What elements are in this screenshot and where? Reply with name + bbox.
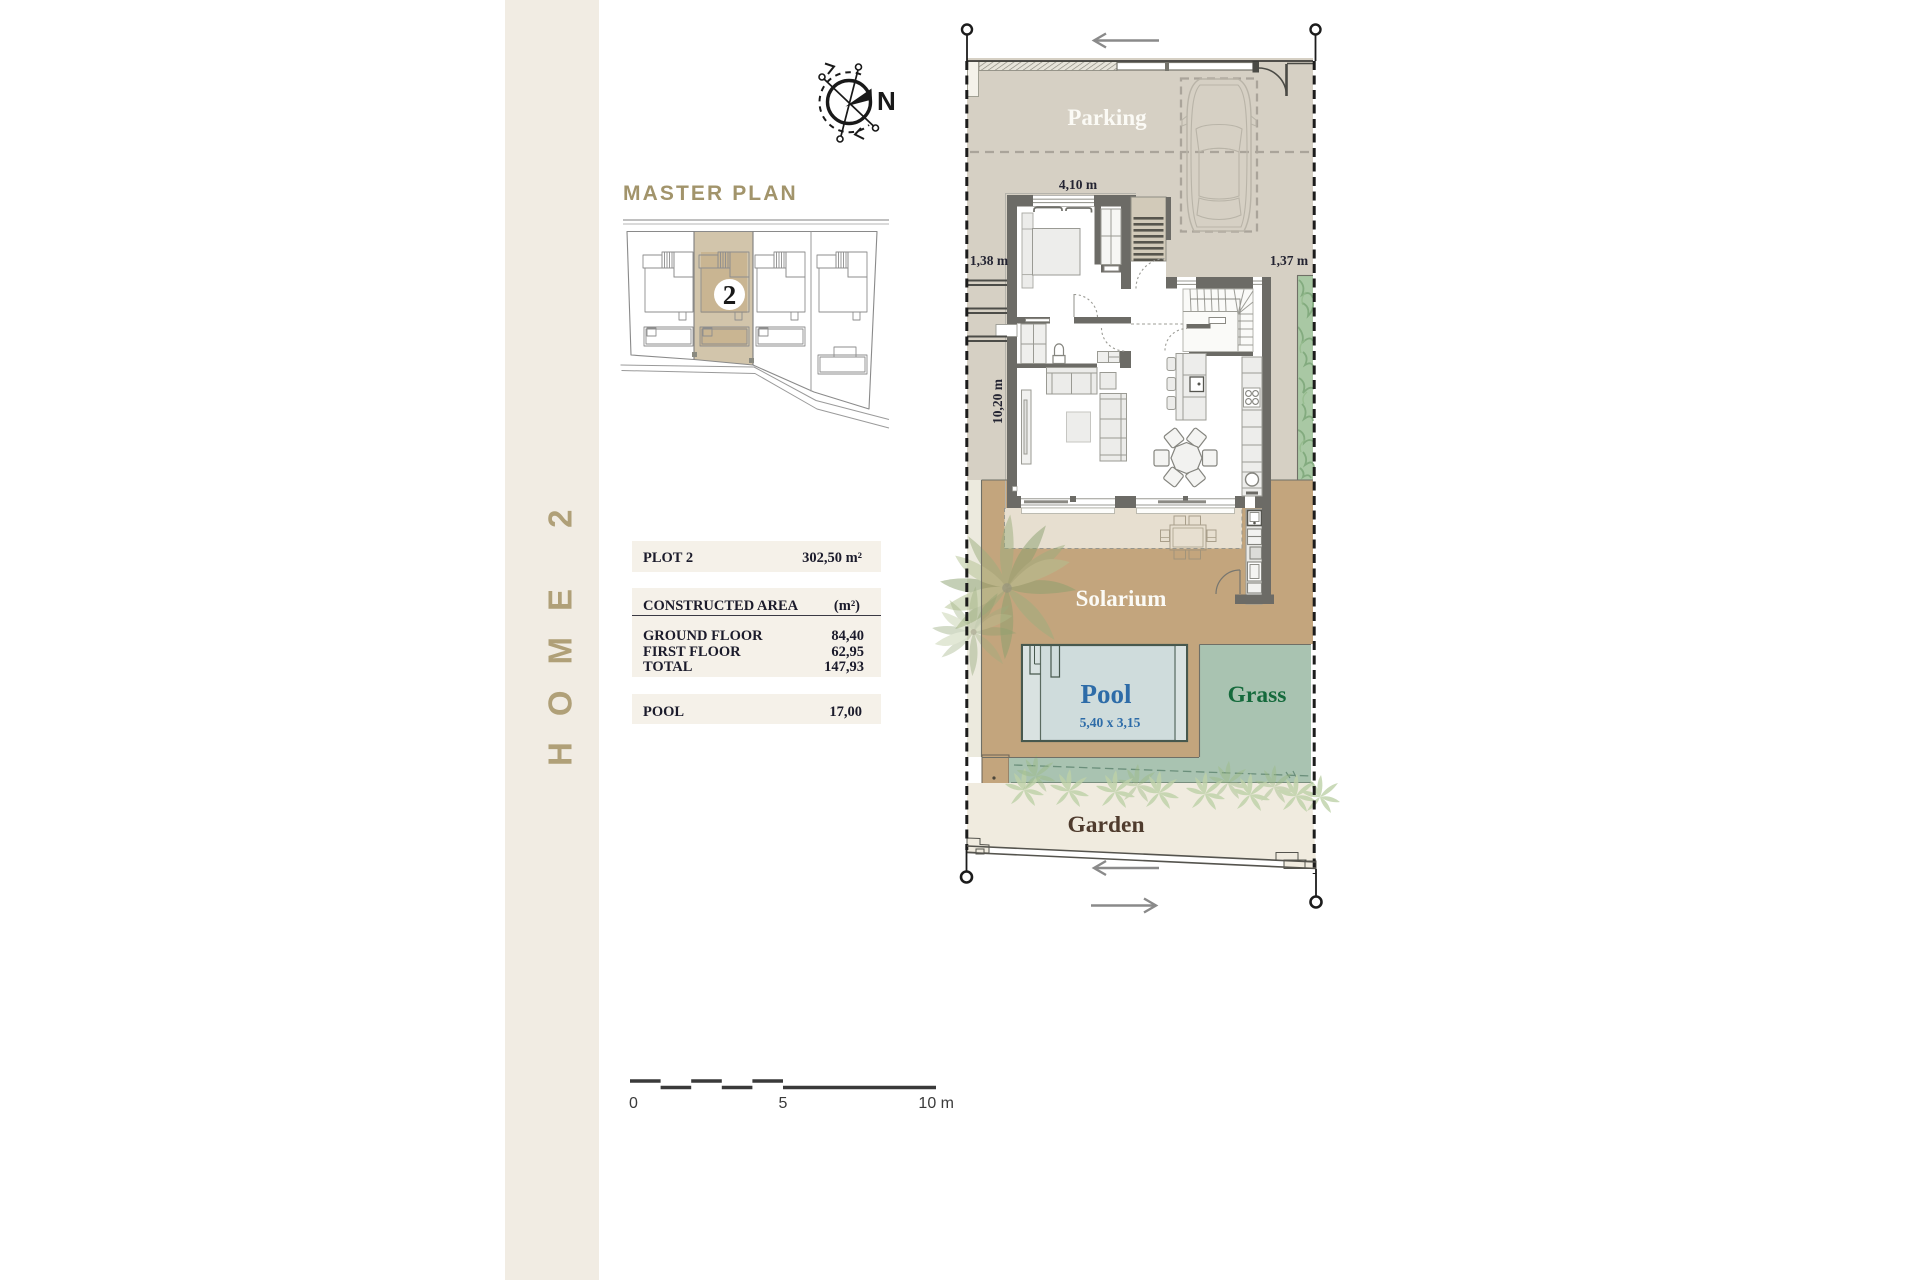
- svg-text:N: N: [877, 86, 896, 116]
- svg-text:10 m: 10 m: [918, 1095, 954, 1112]
- svg-text:84,40: 84,40: [831, 628, 864, 644]
- svg-text:Garden: Garden: [1067, 812, 1144, 838]
- svg-text:GROUND FLOOR: GROUND FLOOR: [643, 628, 763, 644]
- svg-text:5: 5: [779, 1095, 788, 1112]
- svg-text:Grass: Grass: [1228, 682, 1287, 708]
- svg-text:(m²): (m²): [834, 598, 860, 614]
- svg-text:17,00: 17,00: [829, 704, 862, 720]
- svg-text:HOME 2: HOME 2: [542, 483, 579, 766]
- svg-text:CONSTRUCTED AREA: CONSTRUCTED AREA: [643, 598, 799, 614]
- svg-text:62,95: 62,95: [831, 644, 864, 660]
- svg-text:1,38 m: 1,38 m: [970, 253, 1009, 268]
- svg-text:POOL: POOL: [643, 704, 684, 720]
- svg-text:TOTAL: TOTAL: [643, 659, 693, 675]
- svg-text:302,50 m²: 302,50 m²: [802, 550, 862, 566]
- svg-text:0: 0: [629, 1095, 638, 1112]
- svg-text:10,20 m: 10,20 m: [990, 378, 1005, 424]
- svg-text:PLOT 2: PLOT 2: [643, 550, 693, 566]
- svg-text:Solarium: Solarium: [1076, 586, 1167, 611]
- svg-text:Pool: Pool: [1081, 679, 1132, 709]
- svg-text:FIRST FLOOR: FIRST FLOOR: [643, 644, 741, 660]
- svg-text:4,10 m: 4,10 m: [1059, 177, 1098, 192]
- svg-text:2: 2: [723, 280, 737, 310]
- svg-text:147,93: 147,93: [824, 659, 864, 675]
- svg-text:MASTER PLAN: MASTER PLAN: [623, 182, 798, 205]
- svg-text:Parking: Parking: [1067, 105, 1147, 130]
- svg-text:1,37 m: 1,37 m: [1270, 253, 1309, 268]
- svg-text:5,40 x 3,15: 5,40 x 3,15: [1080, 715, 1141, 730]
